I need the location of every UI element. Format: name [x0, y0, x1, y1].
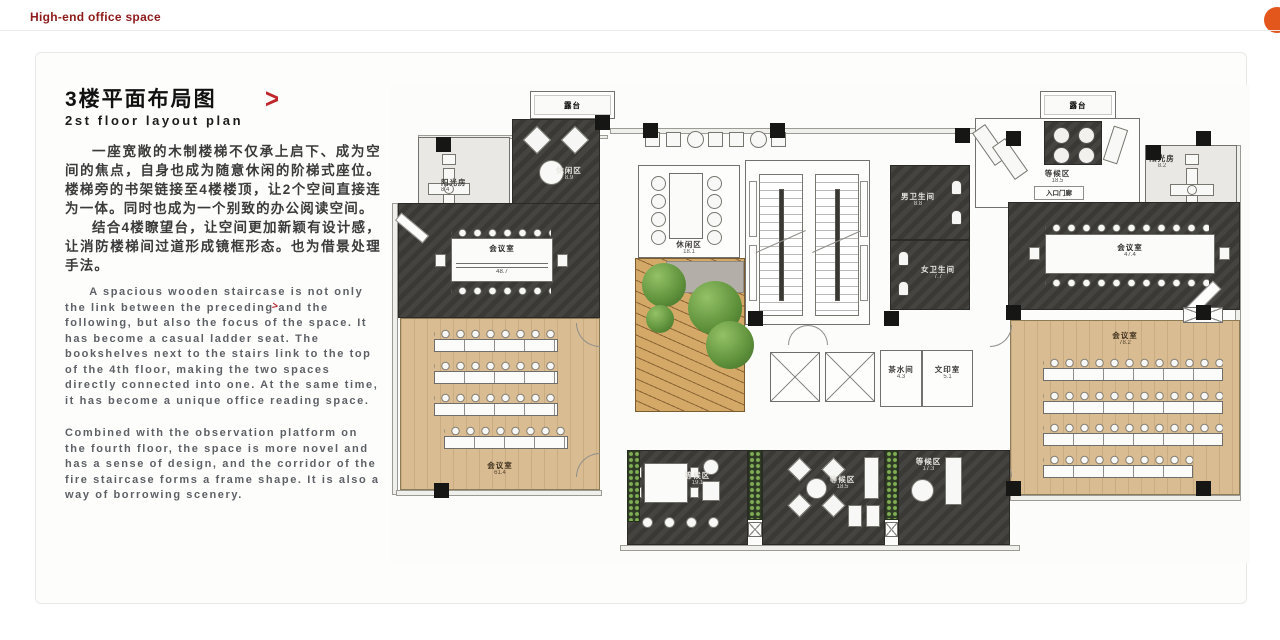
chair-row — [1045, 276, 1209, 288]
stair-rail — [835, 189, 840, 301]
planter — [687, 131, 704, 148]
room-wc-women: 女卫生间 7.7 — [890, 240, 970, 310]
room-label: 露台 — [1070, 101, 1087, 110]
dim-strip — [749, 245, 757, 301]
entrance-porch-box: 入口门廊 — [1034, 186, 1084, 200]
paragraph-en-2: Combined with the observation platform o… — [65, 426, 381, 504]
room-area: 7.7 — [903, 274, 973, 282]
chair — [707, 230, 722, 245]
room-label: 文印室 — [935, 365, 961, 374]
round-table — [806, 478, 827, 499]
table-center — [444, 184, 454, 194]
stool — [642, 517, 653, 528]
room-area: 48.7 — [452, 269, 552, 277]
toilet-icon — [898, 281, 909, 296]
column — [434, 483, 449, 498]
plant-bush — [706, 321, 754, 369]
chair — [821, 457, 845, 481]
room-area: 5.1 — [923, 374, 972, 382]
chair — [442, 154, 456, 165]
chair — [651, 194, 666, 209]
column — [1146, 145, 1161, 160]
chair — [557, 254, 568, 267]
column — [1006, 481, 1021, 496]
fire-stairwell — [745, 160, 870, 325]
paragraph-cn-2: 结合4楼瞭望台，让空间更加新颖有设计感，让消防楼梯间过道形成镜框形态。也为借景处… — [65, 218, 381, 275]
desk-row — [1043, 401, 1223, 414]
column — [1006, 305, 1021, 320]
planter — [729, 132, 744, 147]
room-waiting-top-right: 等候区 18.5 入口门廊 — [975, 118, 1140, 208]
elevator-shaft — [825, 352, 875, 402]
room-area: 47.4 — [1046, 252, 1214, 260]
room-label: 茶水间 — [888, 365, 914, 374]
column — [884, 311, 899, 326]
conference-table: 会议室 48.7 — [451, 238, 553, 282]
red-arrow-icon: > — [265, 84, 279, 116]
room-label: 等候区 — [916, 457, 942, 466]
side-table — [848, 505, 862, 527]
desk-row — [434, 339, 558, 352]
column — [955, 128, 970, 143]
room-label: 入口门廊 — [1046, 190, 1072, 197]
door-arc — [990, 325, 1012, 347]
chair — [435, 254, 446, 267]
room-print: 文印室 5.1 — [922, 350, 973, 407]
room-tea: 茶水间 4.3 — [880, 350, 922, 407]
stool — [686, 517, 697, 528]
room-label: 会议室 — [487, 461, 513, 470]
room-classroom-left: 会议室 61.4 — [400, 318, 600, 490]
column — [595, 115, 610, 130]
stool — [708, 517, 719, 528]
room-area: 18.5 — [976, 178, 1139, 186]
room-meeting-right: 会议室 47.4 — [1008, 202, 1240, 310]
chair-row — [434, 327, 558, 339]
side-table — [702, 481, 720, 501]
floor-plan: 露台 露台 阳光房 8.4 休闲区 8.9 — [390, 85, 1250, 563]
chair-row — [1045, 221, 1209, 233]
room-label: 等候区 — [1045, 169, 1071, 178]
chair — [651, 230, 666, 245]
header-divider — [0, 30, 1280, 31]
chair — [707, 176, 722, 191]
planter — [708, 132, 723, 147]
room-terrace-right: 露台 — [1040, 91, 1116, 119]
door-arc — [788, 325, 808, 345]
chair-row — [1043, 389, 1223, 401]
chair — [787, 493, 811, 517]
plant-bush — [646, 305, 674, 333]
room-lounge-center: 休闲区 18.1 — [638, 165, 740, 258]
room-label: 露台 — [564, 101, 581, 110]
room-area: 4.3 — [881, 374, 921, 382]
chair-row — [444, 424, 568, 436]
column — [1196, 481, 1211, 496]
chair — [651, 176, 666, 191]
room-label: 休闲区 — [676, 240, 702, 249]
dim-strip — [860, 245, 868, 301]
chair — [703, 459, 719, 475]
armchair — [561, 126, 589, 154]
paragraph-cn-1: 一座宽敞的木制楼梯不仅承上启下、成为空间的焦点，自身也成为随意休闲的阶梯式座位。… — [65, 142, 381, 218]
desk-row — [1043, 465, 1193, 478]
chair — [690, 467, 699, 478]
page-subtitle: 2st floor layout plan — [65, 113, 381, 128]
room-waiting-bottom-1: 等候区 19.1 — [627, 450, 748, 545]
column — [1196, 131, 1211, 146]
plant-divider — [885, 450, 898, 520]
chair-row — [434, 359, 558, 371]
chair — [1185, 154, 1199, 165]
table — [644, 463, 688, 503]
armchair — [523, 126, 551, 154]
page-title: 3楼平面布局图 — [65, 88, 381, 111]
column — [748, 311, 763, 326]
desk-row — [434, 403, 558, 416]
stool — [664, 517, 675, 528]
toilet-icon — [951, 210, 962, 225]
toilet-icon — [898, 251, 909, 266]
room-label: 会议室 — [1112, 331, 1138, 340]
desk-row — [444, 436, 568, 449]
room-wc-men: 男卫生间 8.8 — [890, 165, 970, 240]
side-table — [866, 505, 880, 527]
chair-row — [451, 226, 551, 238]
room-label: 会议室 — [1117, 243, 1143, 252]
planter — [666, 132, 681, 147]
stair-rail — [779, 189, 784, 301]
plant-divider — [627, 450, 640, 522]
grille — [885, 522, 898, 537]
waiting-dark-panel — [1044, 121, 1102, 165]
room-area: 61.4 — [401, 470, 599, 478]
chair-row — [451, 284, 551, 296]
column — [643, 123, 658, 138]
chair-row — [1043, 356, 1223, 368]
table-center — [1187, 185, 1197, 195]
room-label: 会议室 — [489, 244, 515, 253]
sofa — [945, 457, 962, 505]
chair — [1029, 247, 1040, 260]
paragraph-en-1: A spacious wooden staircase is not only … — [65, 285, 381, 409]
planter — [750, 131, 767, 148]
chair — [707, 194, 722, 209]
dim-strip — [749, 181, 757, 237]
long-table — [669, 173, 703, 239]
room-area: 78.2 — [1011, 340, 1239, 348]
column — [770, 123, 785, 138]
dim-strip — [860, 181, 868, 237]
chair — [707, 212, 722, 227]
brand-text: High-end office space — [30, 10, 161, 24]
round-table — [539, 160, 564, 185]
plant-divider — [748, 450, 762, 520]
door-arc — [808, 325, 828, 345]
column — [1196, 305, 1211, 320]
room-area: 8.2 — [1132, 163, 1192, 171]
grille — [748, 522, 762, 537]
chair — [690, 487, 699, 498]
lounge-chair — [1103, 126, 1128, 165]
chair — [651, 212, 666, 227]
desk-row — [434, 371, 558, 384]
chair-row — [1043, 421, 1223, 433]
wall-bottom-corridor — [620, 545, 1020, 551]
column — [1006, 131, 1021, 146]
left-text-column: 3楼平面布局图 > 2st floor layout plan 一座宽敞的木制楼… — [65, 88, 381, 504]
room-waiting-bottom-3: 等候区 17.3 — [898, 450, 1010, 545]
chair — [787, 457, 811, 481]
desk-row — [1043, 433, 1223, 446]
chair — [1219, 247, 1230, 260]
room-area: 18.1 — [639, 249, 739, 257]
chair-row — [1043, 453, 1193, 465]
room-waiting-bottom-2: 等候区 18.5 — [762, 450, 885, 545]
room-classroom-right: 会议室 78.2 — [1010, 320, 1240, 495]
wooden-staircase — [635, 258, 745, 412]
conference-table: 会议室 47.4 — [1045, 234, 1215, 274]
wall-bottom-left — [396, 490, 602, 496]
room-area: 8.8 — [883, 201, 953, 209]
chair — [821, 493, 845, 517]
sofa — [864, 457, 879, 499]
room-label: 女卫生间 — [921, 265, 955, 274]
desk-row — [1043, 368, 1223, 381]
chair-row — [434, 391, 558, 403]
round-table — [911, 479, 934, 502]
slide: High-end office space 3楼平面布局图 > 2st floo… — [0, 0, 1280, 640]
column — [436, 137, 451, 152]
elevator-shaft — [770, 352, 820, 402]
room-meeting-left: 会议室 48.7 — [398, 203, 600, 318]
room-label: 男卫生间 — [901, 192, 935, 201]
plant-bush — [642, 263, 686, 307]
balcony-tag — [395, 213, 429, 244]
toilet-icon — [951, 180, 962, 195]
